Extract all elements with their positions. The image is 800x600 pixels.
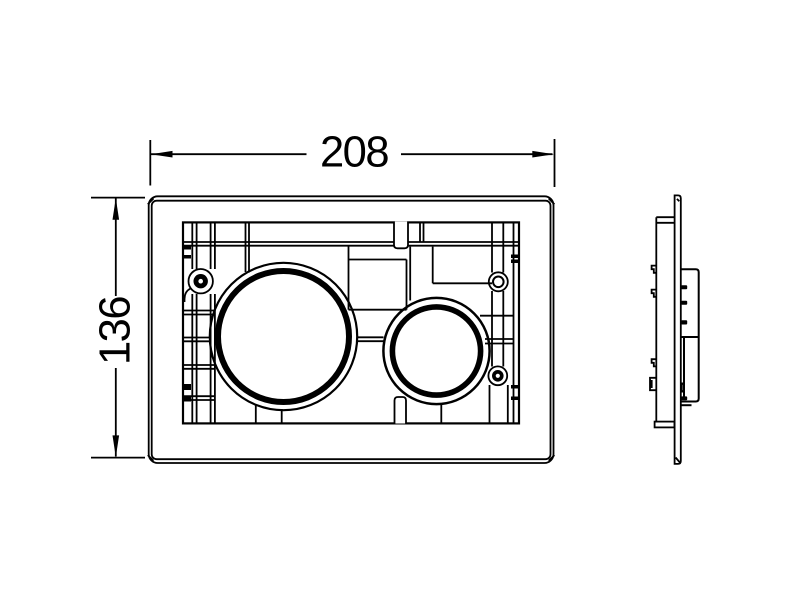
svg-text:208: 208 [320,129,388,177]
svg-text:136: 136 [92,297,140,365]
